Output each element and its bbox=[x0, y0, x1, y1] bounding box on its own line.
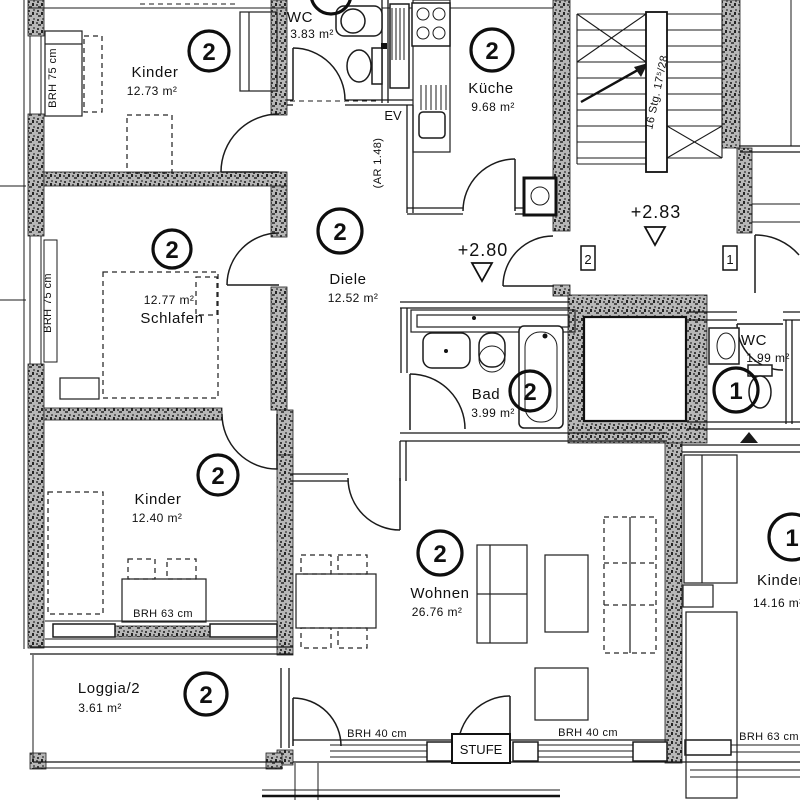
floor-plan: 16 Stg. 17⁵/28 bbox=[0, 0, 800, 800]
apartment-number: 2 bbox=[333, 219, 346, 246]
door-loggia bbox=[293, 698, 341, 746]
wardrobe-icon bbox=[604, 517, 656, 653]
step-label: STUFE bbox=[460, 742, 503, 757]
door-bad bbox=[410, 374, 465, 430]
door-wohnen bbox=[348, 478, 400, 530]
room-name: Küche bbox=[468, 80, 514, 97]
side-table bbox=[545, 555, 588, 632]
room-area: 9.68 m² bbox=[471, 100, 514, 114]
svg-text:2: 2 bbox=[584, 252, 591, 267]
ev-shaft bbox=[381, 4, 409, 88]
room-area: 3.83 m² bbox=[290, 27, 333, 41]
door-kueche bbox=[463, 159, 515, 211]
room-area: 1.99 m² bbox=[746, 351, 789, 365]
level-marker-hall: +2.80 bbox=[458, 240, 509, 281]
parapet-label: BRH 63 cm bbox=[133, 608, 193, 620]
svg-text:+2.83: +2.83 bbox=[631, 202, 682, 222]
room-area: 12.40 m² bbox=[132, 511, 183, 525]
svg-text:+2.80: +2.80 bbox=[458, 240, 509, 260]
room-name: Kinder bbox=[757, 572, 800, 589]
room-area: 12.73 m² bbox=[127, 84, 178, 98]
room-kinder-bottom-left: 2 Kinder 12.40 m² bbox=[132, 455, 238, 525]
room-area: 12.77 m² bbox=[144, 293, 195, 307]
niche-label: (AR 1.48) bbox=[372, 138, 384, 189]
room-name: Kinder bbox=[135, 491, 182, 508]
room-name: WC bbox=[287, 9, 313, 26]
room-name: Diele bbox=[329, 271, 366, 288]
double-bed-icon bbox=[60, 272, 218, 399]
room-schlafen: 2 12.77 m² Schlafen bbox=[140, 230, 203, 327]
stove-icon bbox=[412, 3, 450, 46]
room-area: 26.76 m² bbox=[412, 605, 463, 619]
nightstand bbox=[60, 378, 99, 399]
radiator-icon bbox=[421, 85, 446, 110]
door-schlafen bbox=[227, 233, 279, 285]
kitchen-sink-icon bbox=[419, 112, 445, 138]
door-apartment-1-entry bbox=[755, 235, 799, 293]
apartment-number: 2 bbox=[199, 682, 212, 709]
ev-label: EV bbox=[384, 108, 402, 123]
door-swing-mark bbox=[740, 432, 758, 443]
apartment-number: 1 bbox=[729, 378, 742, 405]
door-apartment-2-entry bbox=[503, 236, 553, 286]
room-wohnen: 2 Wohnen 26.76 m² bbox=[410, 531, 469, 619]
room-name: Wohnen bbox=[410, 585, 469, 602]
rug bbox=[127, 115, 172, 173]
staircase: 16 Stg. 17⁵/28 bbox=[577, 12, 722, 172]
room-area: 3.99 m² bbox=[471, 406, 514, 420]
apartment-number: 2 bbox=[211, 463, 224, 490]
parapet-label: BRH 40 cm bbox=[558, 727, 618, 739]
apartment-number: 2 bbox=[433, 541, 446, 568]
room-kinder-right: 1 Kinder 14.16 m² bbox=[753, 514, 800, 610]
parapet-label: BRH 40 cm bbox=[347, 728, 407, 740]
door-kinder-top bbox=[221, 114, 279, 172]
level-marker-stairs: +2.83 bbox=[631, 202, 682, 245]
apartment-number: 2 bbox=[523, 379, 536, 406]
room-area: 12.52 m² bbox=[328, 291, 379, 305]
room-loggia: 2 Loggia/2 3.61 m² bbox=[78, 673, 227, 715]
toilet-tank bbox=[372, 48, 382, 84]
nightstand bbox=[683, 585, 713, 607]
apartment-door-tag-1: 1 bbox=[723, 246, 737, 270]
apartment-number: 2 bbox=[202, 39, 215, 66]
room-name: Schlafen bbox=[140, 310, 203, 327]
svg-text:1: 1 bbox=[726, 252, 733, 267]
elevator-shaft bbox=[584, 317, 686, 421]
shaft-box bbox=[524, 178, 556, 215]
parapet-label: BRH 75 cm bbox=[42, 273, 54, 333]
room-area: 3.61 m² bbox=[78, 701, 121, 715]
parapet-label: BRH 63 cm bbox=[739, 731, 799, 743]
kitchen-fixtures bbox=[412, 0, 450, 152]
nightstand bbox=[84, 36, 102, 112]
dining-table-icon bbox=[296, 555, 376, 648]
wardrobe-icon bbox=[684, 455, 737, 583]
sofa-icon bbox=[477, 545, 527, 643]
toilet-icon bbox=[347, 50, 371, 82]
wardrobe-icon bbox=[48, 492, 103, 614]
parapet-label: BRH 75 cm bbox=[47, 48, 59, 108]
room-name: Loggia/2 bbox=[78, 680, 140, 697]
apartment-number: 2 bbox=[485, 38, 498, 65]
washbasin-icon bbox=[341, 9, 365, 33]
apartment-number: 2 bbox=[165, 237, 178, 264]
room-name: Kinder bbox=[132, 64, 179, 81]
apartment-number: 1 bbox=[785, 525, 798, 552]
room-name: Bad bbox=[472, 386, 501, 403]
room-kinder-top-left: 2 Kinder 12.73 m² bbox=[127, 31, 229, 98]
wc2-fixtures bbox=[336, 6, 382, 84]
door-wc2 bbox=[293, 48, 345, 100]
room-area: 14.16 m² bbox=[753, 596, 800, 610]
room-name: WC bbox=[741, 332, 767, 349]
room-diele: 2 Diele 12.52 m² bbox=[318, 209, 378, 305]
room-kueche: 2 Küche 9.68 m² bbox=[468, 29, 515, 114]
sofa-icon bbox=[535, 668, 588, 720]
apartment-door-tag-2: 2 bbox=[581, 246, 595, 270]
